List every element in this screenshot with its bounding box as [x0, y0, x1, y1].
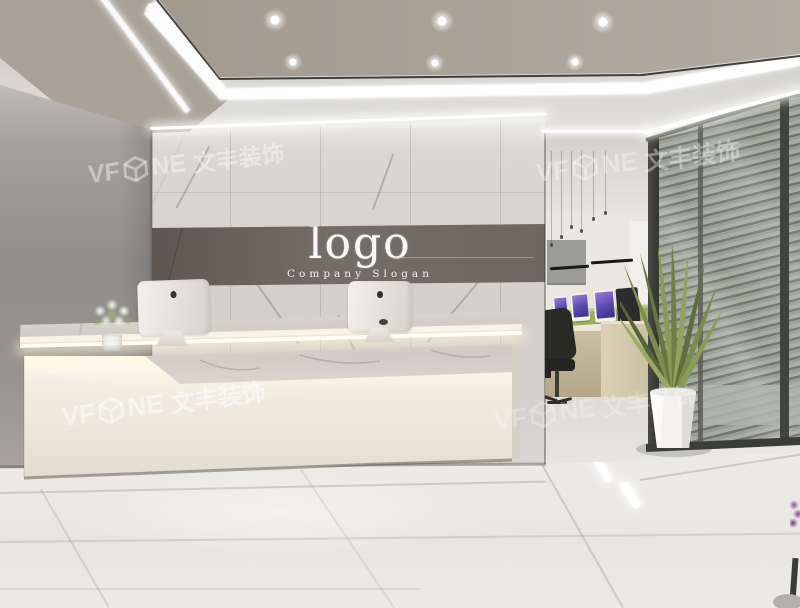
floor-grout-line	[0, 533, 800, 543]
cove-led-strip-outer	[100, 0, 188, 112]
marble-panel-joint	[152, 192, 545, 193]
monitor-screen	[571, 294, 588, 318]
pot-rim	[650, 388, 696, 397]
pendant-bulb	[580, 229, 583, 233]
office-chair-post	[555, 370, 559, 397]
office-wall-panel	[547, 240, 586, 285]
pendant-bulb	[560, 235, 563, 239]
glass-frame-post	[780, 93, 789, 455]
pendant-wire	[605, 151, 606, 211]
apple-logo-icon	[377, 291, 383, 298]
pendant-bulb	[570, 225, 573, 229]
cove-led-strip-inner	[144, 0, 800, 100]
pendant-wire	[551, 151, 552, 243]
flower-bouquet	[92, 299, 134, 339]
office-monitor	[593, 289, 617, 323]
corner-chair-base	[773, 594, 800, 608]
floor-led-dash	[619, 480, 643, 510]
office-reception-render: logo Company Slogan	[0, 0, 800, 608]
spotlight-starburst	[538, 44, 611, 80]
floor-grout-line	[0, 588, 420, 590]
spotlight-starburst	[228, 0, 321, 43]
pendant-bulb	[550, 243, 553, 247]
company-logo-text: logo	[270, 222, 450, 266]
spotlight-starburst	[395, 0, 488, 44]
spotlight-starburst	[256, 44, 329, 80]
spotlight-starburst	[398, 45, 471, 81]
pendant-wire	[593, 151, 594, 217]
logo-accent-line	[392, 257, 534, 258]
marble-vein	[176, 146, 210, 209]
floor-grout-line	[40, 489, 110, 608]
office-chair-seat	[545, 359, 575, 371]
potted-snake-plant	[620, 242, 740, 462]
office-monitor	[570, 292, 590, 321]
imac-monitor-back	[137, 279, 211, 336]
ceiling-recessed-panel	[159, 0, 800, 77]
pendant-wire	[561, 151, 562, 235]
marble-vein	[372, 154, 394, 211]
imac-cable-hole	[379, 319, 388, 325]
logo-wall-band: logo Company Slogan	[152, 224, 545, 286]
plant-leaves	[620, 244, 726, 401]
monitor-screen	[594, 291, 614, 319]
pendant-wire	[581, 151, 582, 229]
spotlight-starburst	[556, 0, 649, 45]
pendant-wire	[571, 151, 572, 225]
apple-logo-icon	[170, 291, 176, 298]
pendant-bulb	[604, 211, 607, 215]
doorway-led-strip	[541, 130, 651, 133]
ceiling-groove	[157, 0, 800, 79]
company-slogan-text: Company Slogan	[270, 268, 450, 280]
purple-plant-sliver	[790, 500, 800, 530]
office-chair-leg	[547, 401, 567, 404]
pendant-bulb	[592, 217, 595, 221]
desk-end-cap	[512, 343, 520, 460]
pot-shade	[682, 392, 696, 448]
